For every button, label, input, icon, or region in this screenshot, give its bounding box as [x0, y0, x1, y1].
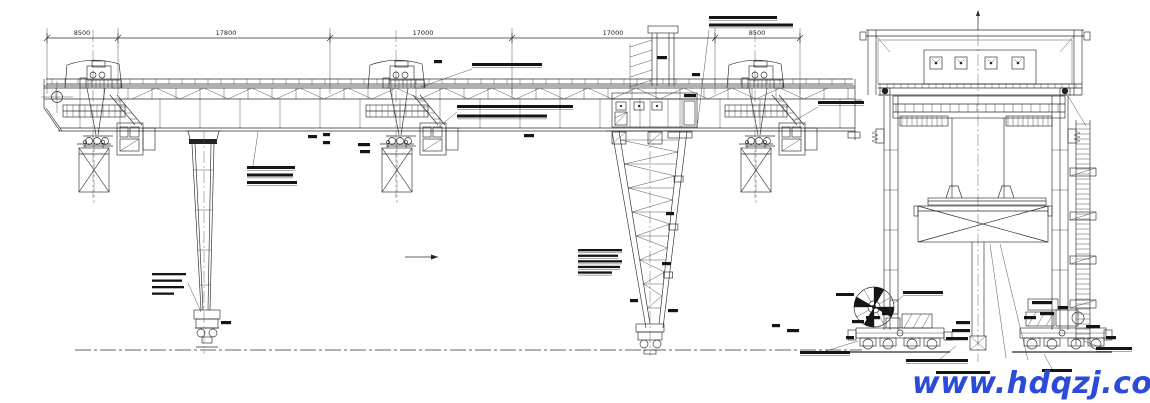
tiny-label-smudge	[846, 336, 854, 339]
annotation-smudge	[578, 266, 620, 268]
tiny-label-smudge	[668, 309, 678, 312]
main-girder	[44, 79, 862, 260]
tiny-label-smudge	[1058, 306, 1068, 309]
tiny-label-smudge	[952, 329, 970, 332]
dim-label: 17000	[413, 29, 434, 37]
annotation-smudge	[152, 286, 184, 288]
annotation-smudge	[457, 115, 547, 118]
endview-frame	[860, 10, 1090, 362]
annotation-smudge	[152, 280, 182, 282]
tiny-label-smudge	[657, 56, 667, 59]
annotation-smudge	[247, 166, 295, 169]
annotation-smudge	[247, 174, 293, 177]
tiny-label-smudge	[630, 299, 638, 302]
tiny-label-smudge	[221, 321, 231, 324]
annotation-smudge	[906, 359, 968, 362]
annotation-smudge	[818, 101, 864, 104]
tiny-label-smudge	[946, 337, 968, 340]
annotation-smudge	[578, 260, 622, 262]
spreader-container	[914, 198, 1052, 360]
dim-label: 17000	[603, 29, 624, 37]
dim-label: 8500	[74, 29, 91, 37]
tiny-label-smudge	[1024, 316, 1036, 319]
tiny-label-smudge	[323, 141, 330, 144]
annotation-callouts	[152, 16, 1132, 374]
annotation-smudge	[152, 293, 174, 295]
endview-legs	[872, 96, 1086, 330]
tiny-label-smudge	[323, 133, 330, 136]
ground-line	[75, 350, 1112, 352]
annotation-smudge	[152, 273, 186, 275]
annotation-smudge	[457, 105, 573, 108]
machinery-cab	[612, 93, 697, 144]
annotation-smudge	[1096, 347, 1132, 350]
tiny-label-smudge	[308, 135, 317, 138]
tiny-label-smudge	[787, 329, 799, 332]
tiny-label-smudge	[852, 320, 864, 323]
tiny-label-smudge	[358, 143, 370, 146]
tiny-label-smudge	[666, 212, 674, 215]
tiny-label-smudge	[956, 321, 970, 324]
annotation-smudge	[578, 271, 612, 273]
cad-canvas: 8500 17800 17000 17000 8500	[0, 0, 1150, 403]
annotation-smudge	[247, 181, 297, 184]
tiny-label-smudge	[1106, 336, 1116, 339]
endview-ladder	[1070, 120, 1096, 345]
annotation-smudge	[836, 293, 854, 296]
tiny-label-smudge	[662, 262, 671, 265]
tiny-label-smudge	[1040, 312, 1054, 315]
tiny-label-smudge	[360, 150, 370, 153]
annotation-smudge	[578, 249, 622, 251]
tiny-label-smudge	[434, 60, 442, 63]
tiny-label-smudge	[1086, 325, 1100, 328]
crane-engineering-drawing: 8500 17800 17000 17000 8500 www.hdqzj.co…	[0, 0, 1150, 403]
annotation-smudge	[800, 351, 850, 354]
tiny-label-smudge	[524, 134, 534, 137]
annotation-smudge	[472, 63, 542, 66]
left-leg	[186, 131, 221, 354]
tiny-label-smudge	[866, 316, 880, 319]
tiny-label-smudge	[772, 324, 780, 327]
watermark-url: www.hdqzj.com	[912, 366, 1150, 401]
annotation-smudge	[578, 255, 618, 257]
tiny-label-smudge	[1032, 301, 1052, 304]
annotation-smudge	[709, 24, 793, 27]
dim-label: 17800	[216, 29, 237, 37]
dim-label: 8500	[749, 29, 766, 37]
tiny-label-smudge	[692, 73, 700, 76]
endview-hoist-ropes	[946, 118, 1014, 198]
endview-girder	[878, 84, 1082, 118]
annotation-smudge	[903, 291, 943, 294]
lattice-leg	[606, 131, 692, 356]
tiny-label-smudge	[882, 312, 892, 315]
tiny-label-smudge	[684, 94, 696, 97]
annotation-smudge	[709, 16, 777, 19]
